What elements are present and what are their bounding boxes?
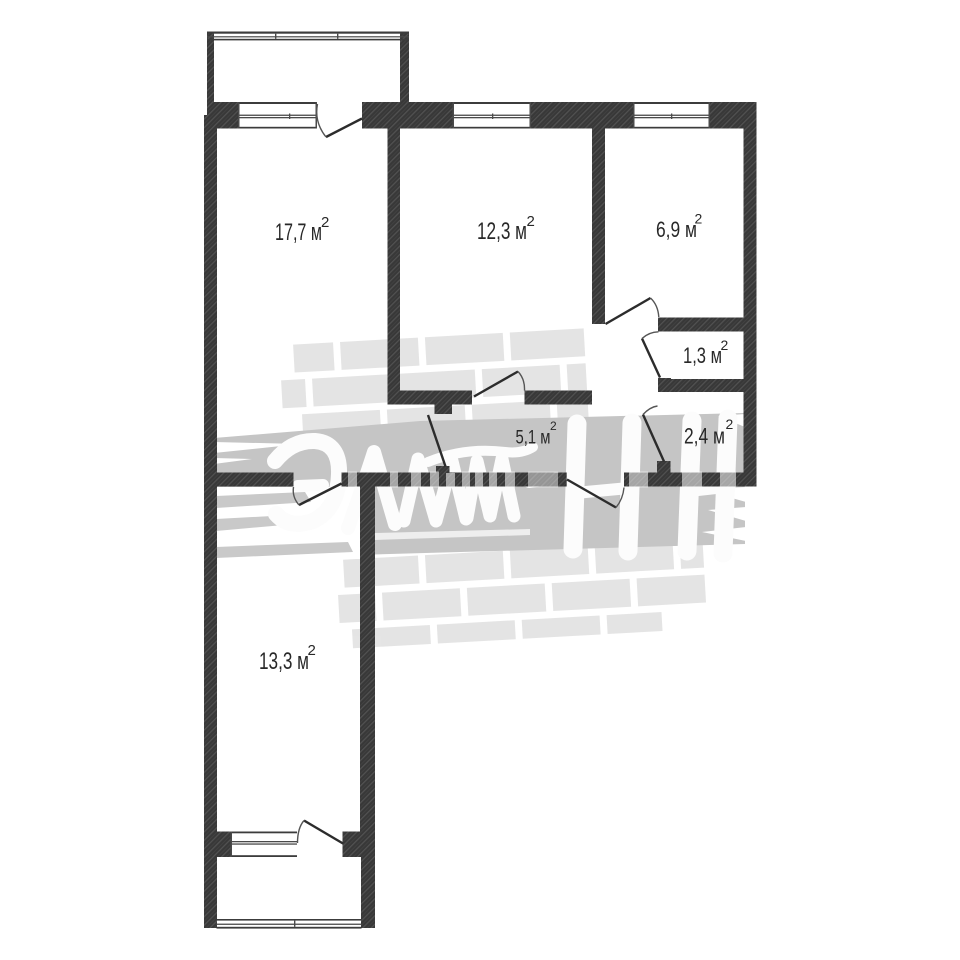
svg-text:2: 2 bbox=[527, 213, 535, 230]
svg-text:2: 2 bbox=[550, 419, 557, 433]
svg-text:1,3 м: 1,3 м bbox=[683, 343, 722, 368]
svg-text:17,7 м: 17,7 м bbox=[275, 219, 322, 246]
svg-text:6,9 м: 6,9 м bbox=[656, 217, 697, 242]
svg-text:2: 2 bbox=[308, 642, 316, 659]
svg-text:2: 2 bbox=[726, 416, 734, 432]
svg-text:2: 2 bbox=[321, 214, 329, 231]
svg-text:12,3 м: 12,3 м bbox=[477, 218, 527, 245]
svg-text:2: 2 bbox=[721, 337, 729, 353]
svg-text:5,1 м: 5,1 м bbox=[516, 428, 551, 449]
svg-text:2: 2 bbox=[695, 211, 703, 227]
svg-text:13,3 м: 13,3 м bbox=[259, 648, 309, 675]
svg-text:2,4 м: 2,4 м bbox=[684, 424, 725, 449]
